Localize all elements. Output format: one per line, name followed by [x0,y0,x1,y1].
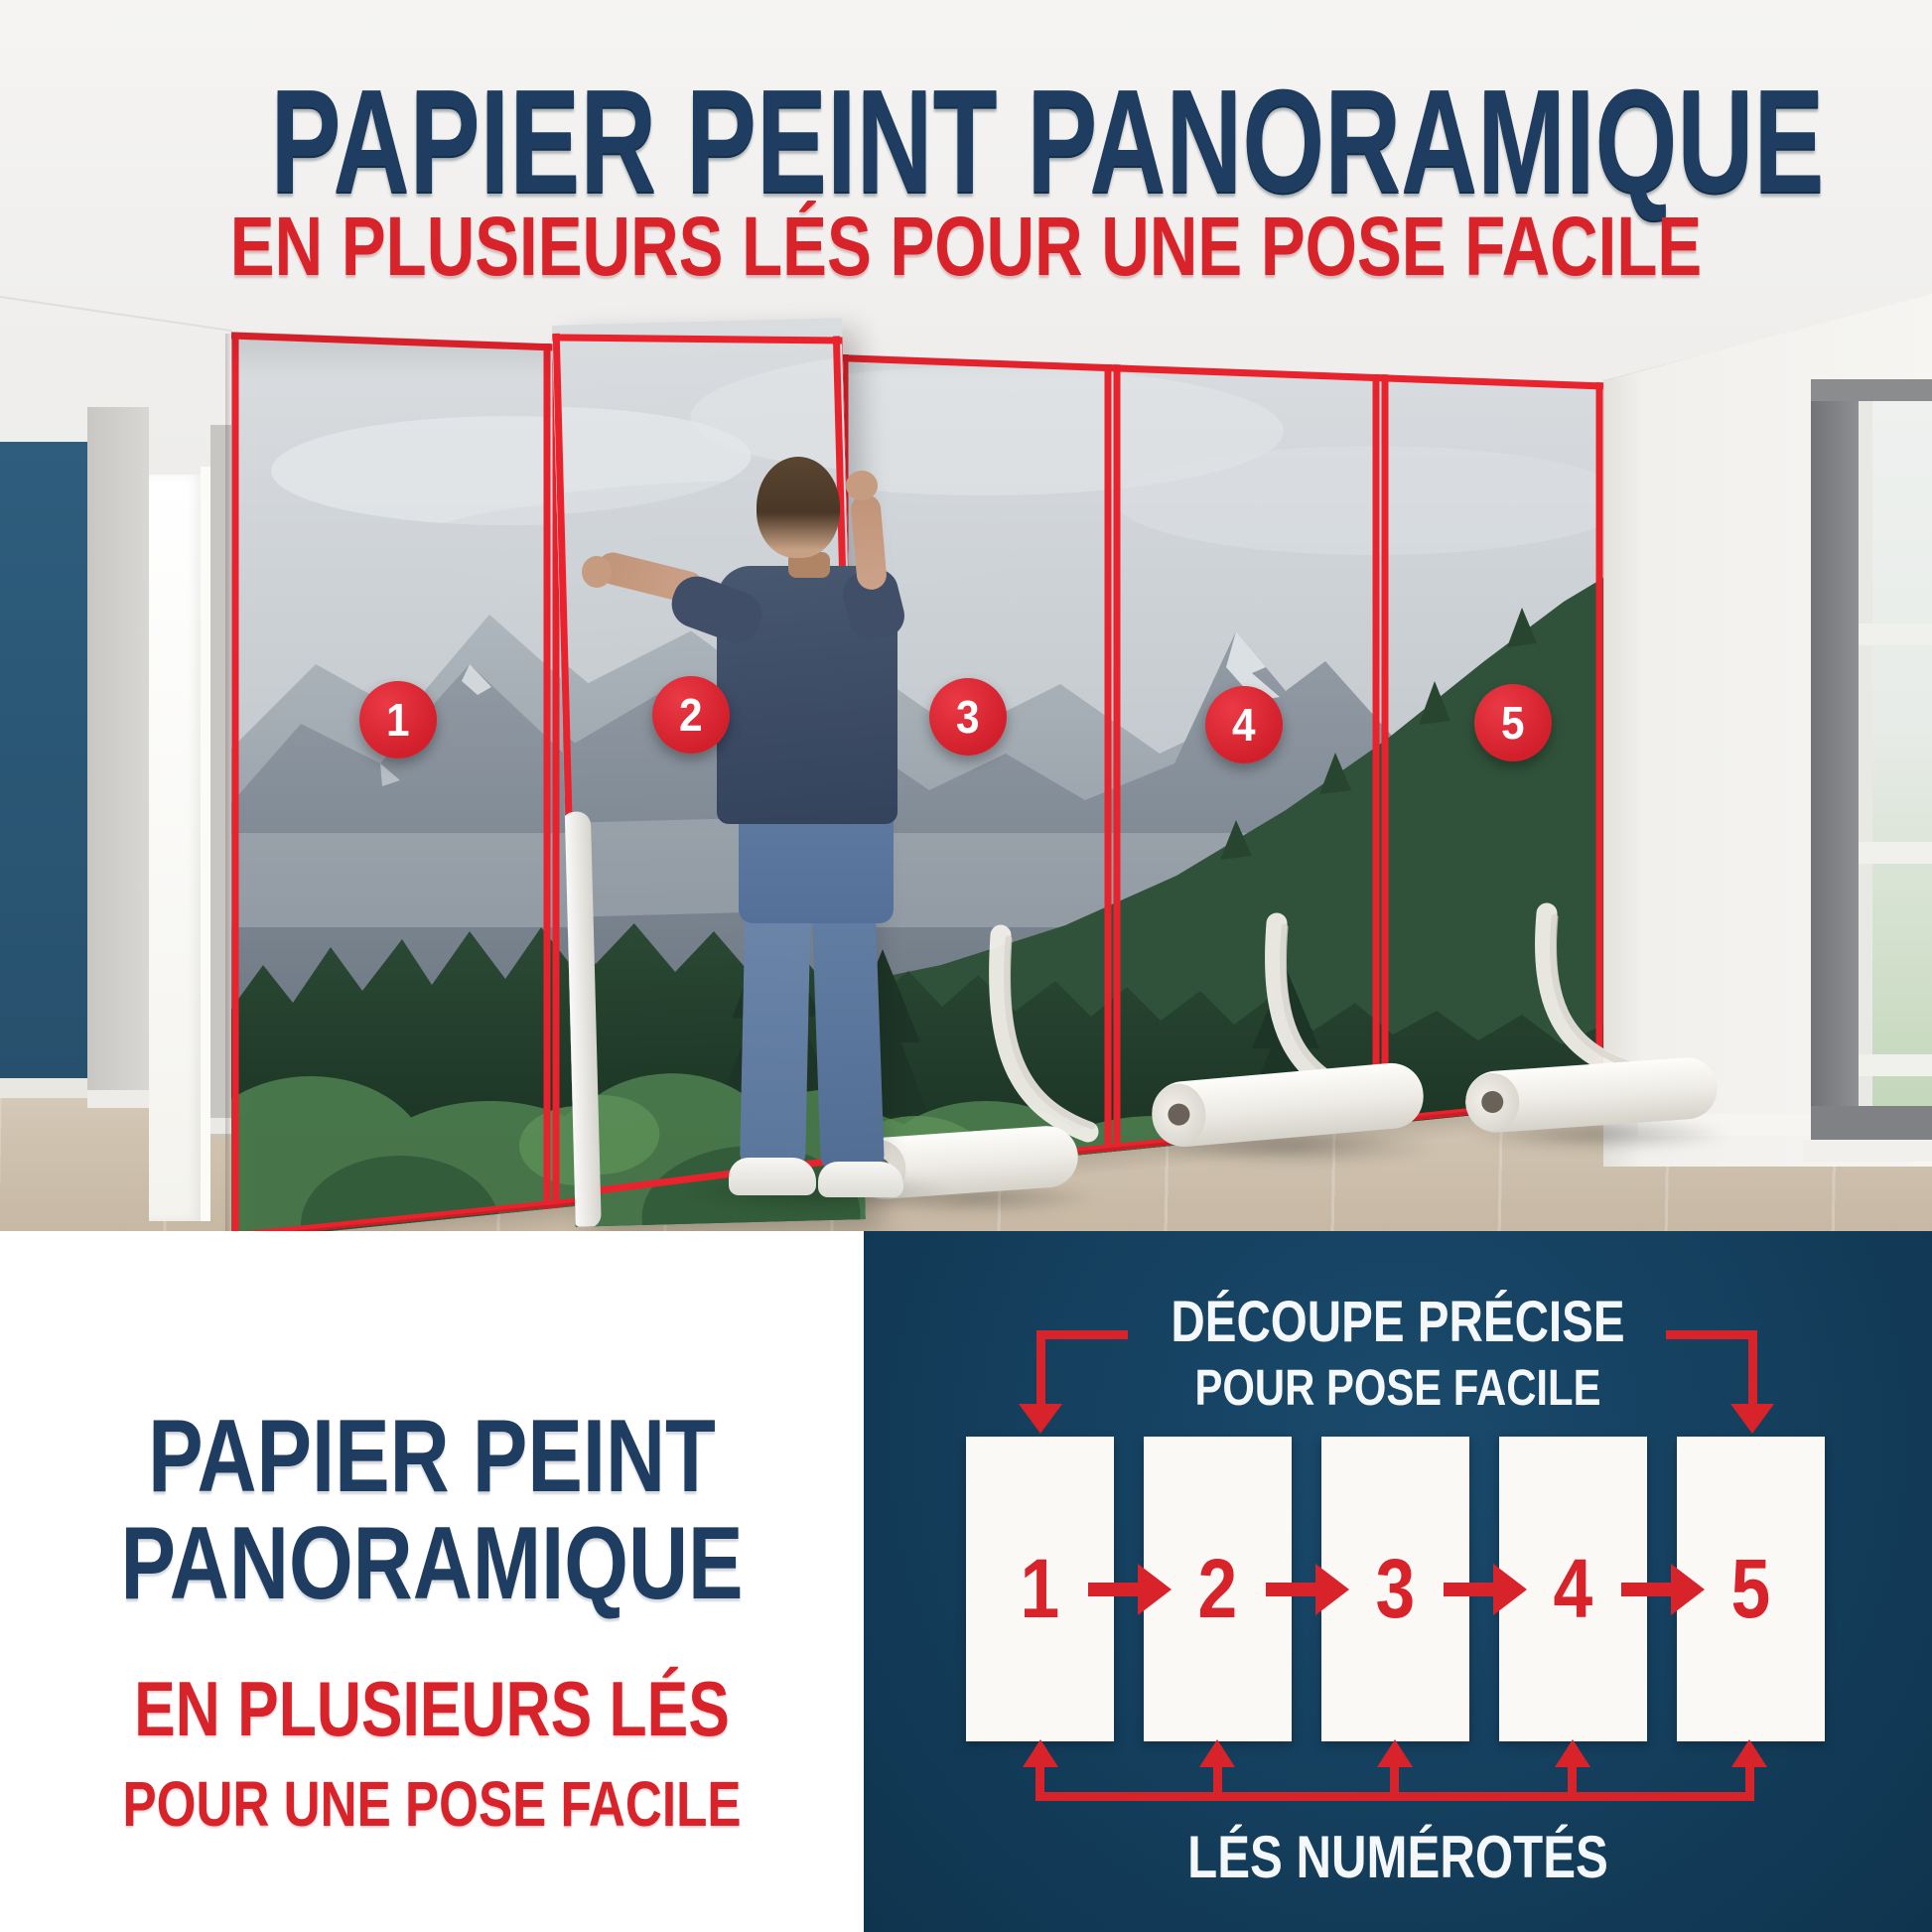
window-frame [1811,401,1863,1112]
panel-title-line1: PAPIER PEINT [86,1398,777,1516]
room-photo: 1 2 3 4 5 PAPIER PEINT PANORAMIQUE EN PL… [0,0,1932,1231]
person-leg [740,885,811,1170]
window-glass [1872,401,1932,1112]
arrow-up-icon [1555,1739,1590,1767]
ceiling-shadow [231,332,1603,377]
panel-title-line2: PANORAMIQUE [86,1505,777,1623]
arrow-up-icon [1023,1739,1058,1767]
window-sill [1803,1140,1932,1162]
arrow-up-icon [1731,1739,1767,1767]
bracket-bar [1748,1330,1757,1406]
diagram-panel: DÉCOUPE PRÉCISE POUR POSE FACILE 1 2 3 4… [864,1231,1932,1932]
person-hand [582,556,612,588]
side-wall [87,407,149,1098]
strip-number-badge-3: 3 [929,678,1007,756]
person-hand [846,471,878,500]
connector-stub [1568,1767,1577,1797]
strip-number-badge-4: 4 [1205,686,1283,763]
wall-corner-shadow [225,334,232,1241]
arrow-right-icon [1444,1564,1527,1615]
door-jamb [201,467,210,1221]
connector-stub [1390,1767,1399,1797]
arrow-up-icon [1199,1739,1235,1767]
person-leg [811,887,885,1173]
connector-stub [1745,1767,1754,1797]
diagram-heading-line1: DÉCOUPE PRÉCISE [960,1289,1836,1355]
diagram-caption: LÉS NUMÉROTÉS [960,1823,1836,1891]
connector-stub [1213,1767,1222,1797]
arrow-down-icon [1019,1404,1062,1434]
person-shoe [729,1158,816,1195]
panel-subtitle-line1: EN PLUSIEURS LÉS [86,1664,777,1754]
arrow-right-icon [1088,1564,1172,1615]
window-frame-bottom [1811,1106,1932,1142]
arrow-up-icon [1377,1739,1413,1767]
window-mullion [1859,842,1932,864]
bottom-left-panel: PAPIER PEINT PANORAMIQUE EN PLUSIEURS LÉ… [0,1231,864,1932]
person-head [757,457,840,558]
arrow-right-icon [1266,1564,1349,1615]
bracket-bar [1036,1330,1045,1406]
wallpaper-infographic: 1 2 3 4 5 PAPIER PEINT PANORAMIQUE EN PL… [0,0,1932,1932]
main-subtitle: EN PLUSIEURS LÉS POUR UNE POSE FACILE [194,199,1739,295]
panel-subtitle-line2: POUR UNE POSE FACILE [86,1767,777,1841]
bracket-bar [1036,1330,1128,1339]
arrow-down-icon [1730,1404,1774,1434]
window-mullion [1859,1054,1932,1076]
doorway-opening [149,475,201,1221]
ceiling-corner-line-left [0,296,232,332]
baseboard [87,1090,149,1108]
strip-number-badge-1: 1 [359,681,437,759]
baseboard [0,1078,87,1098]
connector-stub [1035,1767,1044,1797]
accent-wall-blue [0,442,87,1087]
strip-number-badge-2: 2 [652,676,730,754]
person-shoe [818,1162,903,1197]
bracket-bar [1666,1330,1757,1339]
strip-number-badge-5: 5 [1474,684,1552,761]
arrow-right-icon [1621,1564,1705,1615]
window-mullion [1859,623,1932,645]
diagram-heading-line2: POUR POSE FACILE [960,1358,1836,1417]
